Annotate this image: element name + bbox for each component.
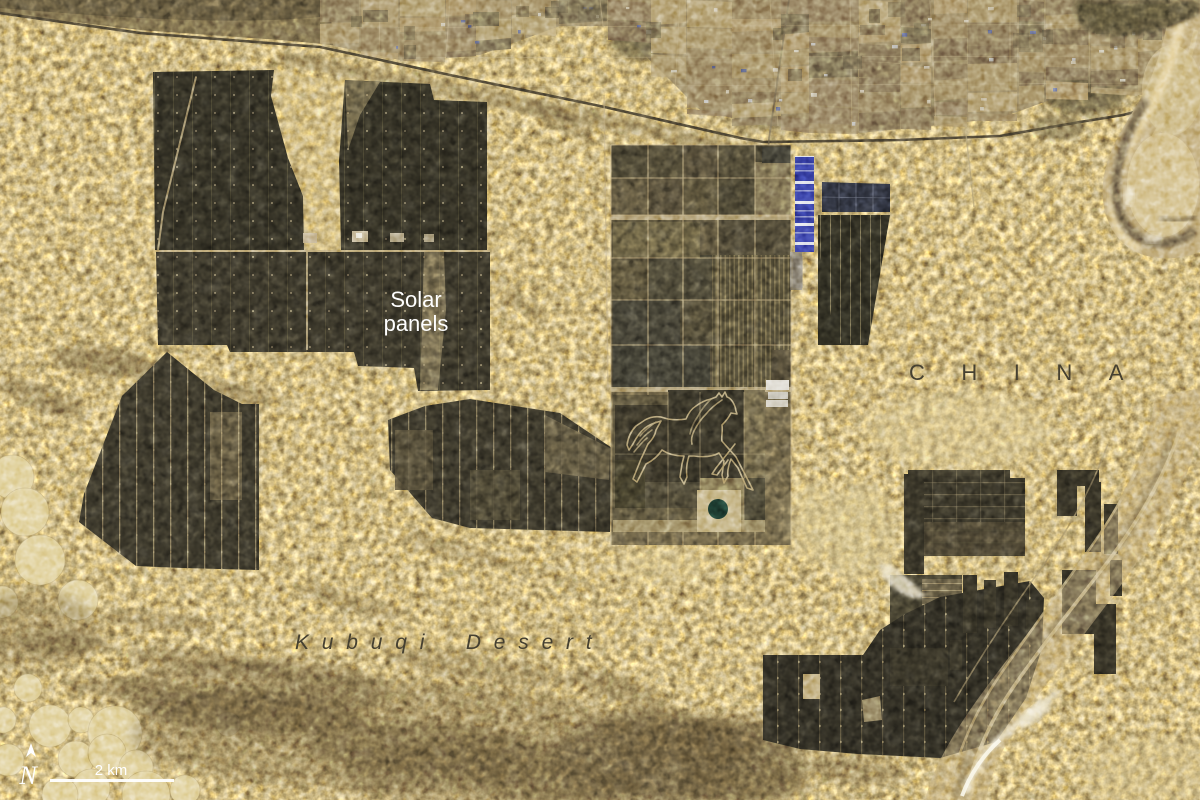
svg-text:CHINA: CHINA — [909, 360, 1160, 385]
svg-text:Kubuqi Desert: Kubuqi Desert — [295, 631, 604, 654]
svg-text:panels: panels — [384, 311, 449, 336]
svg-text:2 km: 2 km — [95, 762, 128, 779]
svg-text:N: N — [18, 761, 38, 790]
svg-text:Solar: Solar — [390, 287, 441, 312]
